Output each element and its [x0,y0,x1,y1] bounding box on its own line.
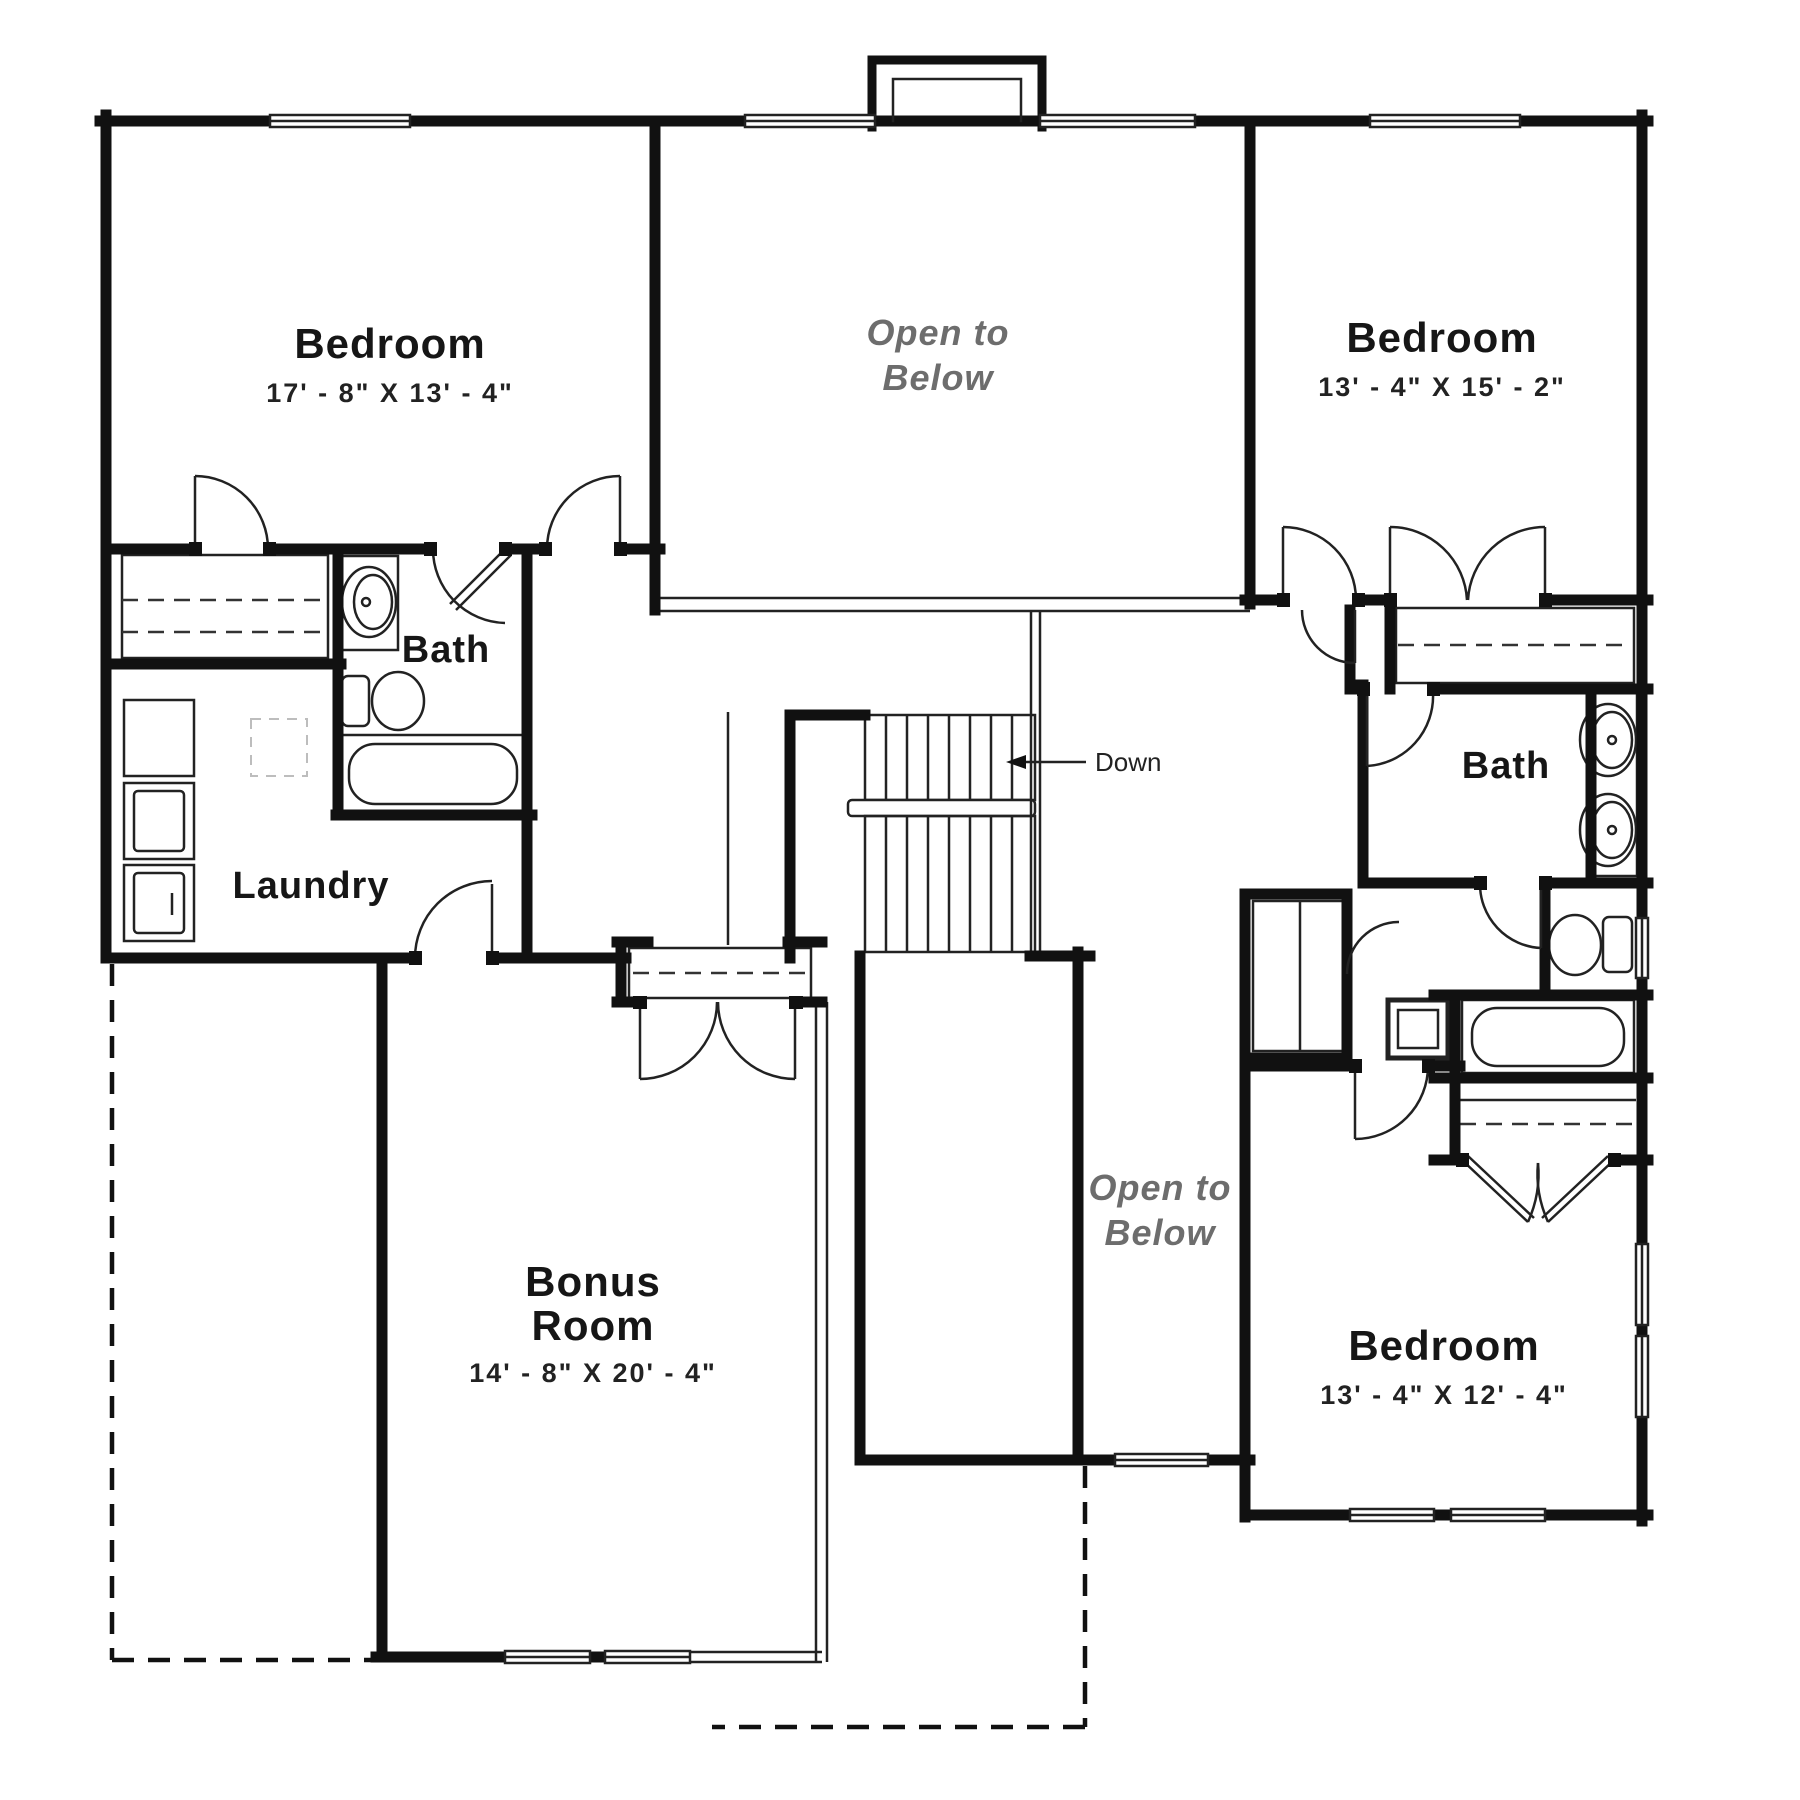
bedroom3-closet [1460,1100,1636,1124]
down-arrow-icon [1006,755,1086,769]
bedroom1-dims: 17' - 8" X 13' - 4" [266,378,514,408]
open-below-top-line2: Below [882,357,994,398]
bedroom3-label: Bedroom [1348,1322,1539,1369]
bonus-room-dims: 14' - 8" X 20' - 4" [469,1358,717,1388]
bonus-room-label-line1: Bonus [525,1258,661,1305]
window-icon [745,115,875,127]
window-icon [1350,1509,1434,1521]
window-icon [1370,115,1520,127]
bath2-label: Bath [1462,745,1550,787]
double-door-icon [640,1002,795,1079]
stairs-down-label: Down [1095,747,1161,777]
washer-icon [124,783,194,859]
bath1-label: Bath [402,629,490,671]
door-icon [1367,693,1433,766]
door-icon [547,476,620,549]
window-icon [1115,1454,1208,1466]
staircase [728,712,1035,952]
dryer-icon [124,865,194,941]
ironing-board-icon [251,719,307,776]
window-icon [1636,918,1648,978]
bathtub-icon [338,735,528,812]
floor-plan-page: Bedroom 17' - 8" X 13' - 4" Open to Belo… [0,0,1800,1800]
bedroom1-label: Bedroom [294,320,485,367]
toilet-icon [1549,915,1632,975]
door-icon [1347,922,1399,974]
door-icon [1355,1066,1428,1139]
stair-handrail [848,800,1035,816]
bedroom2-dims: 13' - 4" X 15' - 2" [1318,372,1566,402]
doors-layer [195,476,1614,1222]
linen-cabinet-icon [1388,1000,1448,1058]
bedroom2-label: Bedroom [1346,314,1537,361]
walls-layer [100,60,1648,1657]
laundry-label: Laundry [233,865,390,907]
open-below-top-line1: Open to [867,312,1010,353]
bonus-room-label-line2: Room [532,1302,655,1349]
door-icon [195,476,268,549]
window-icon [1636,1244,1648,1325]
open-below-bottom-line2: Below [1104,1212,1216,1253]
door-icon [415,881,492,958]
bonus-entry-closet [629,948,811,998]
double-door-icon [1390,527,1545,600]
bedroom3-dims: 13' - 4" X 12' - 4" [1320,1380,1568,1410]
open-below-bottom-line1: Open to [1089,1167,1232,1208]
window-icon [1636,1336,1648,1417]
fixtures-layer [122,555,1637,1124]
bathtub-icon [1462,1000,1634,1073]
floor-plan-drawing: Bedroom 17' - 8" X 13' - 4" Open to Belo… [0,0,1800,1800]
laundry-counter-icon [124,700,194,776]
window-icon [505,1651,590,1663]
door-icon [1480,883,1541,948]
window-icon [605,1651,690,1663]
window-icon [1451,1509,1545,1521]
door-icon [433,549,511,623]
hall-closet [1253,901,1347,1051]
toilet-icon [342,672,424,730]
bifold-door-icon [1462,1156,1614,1222]
window-icon [1040,115,1195,127]
walkin-closet-icon [122,555,328,658]
window-icon [270,115,410,127]
door-icon [1283,527,1356,600]
bathroom-sink-icon [342,556,398,650]
bedroom2-closet [1396,608,1634,683]
